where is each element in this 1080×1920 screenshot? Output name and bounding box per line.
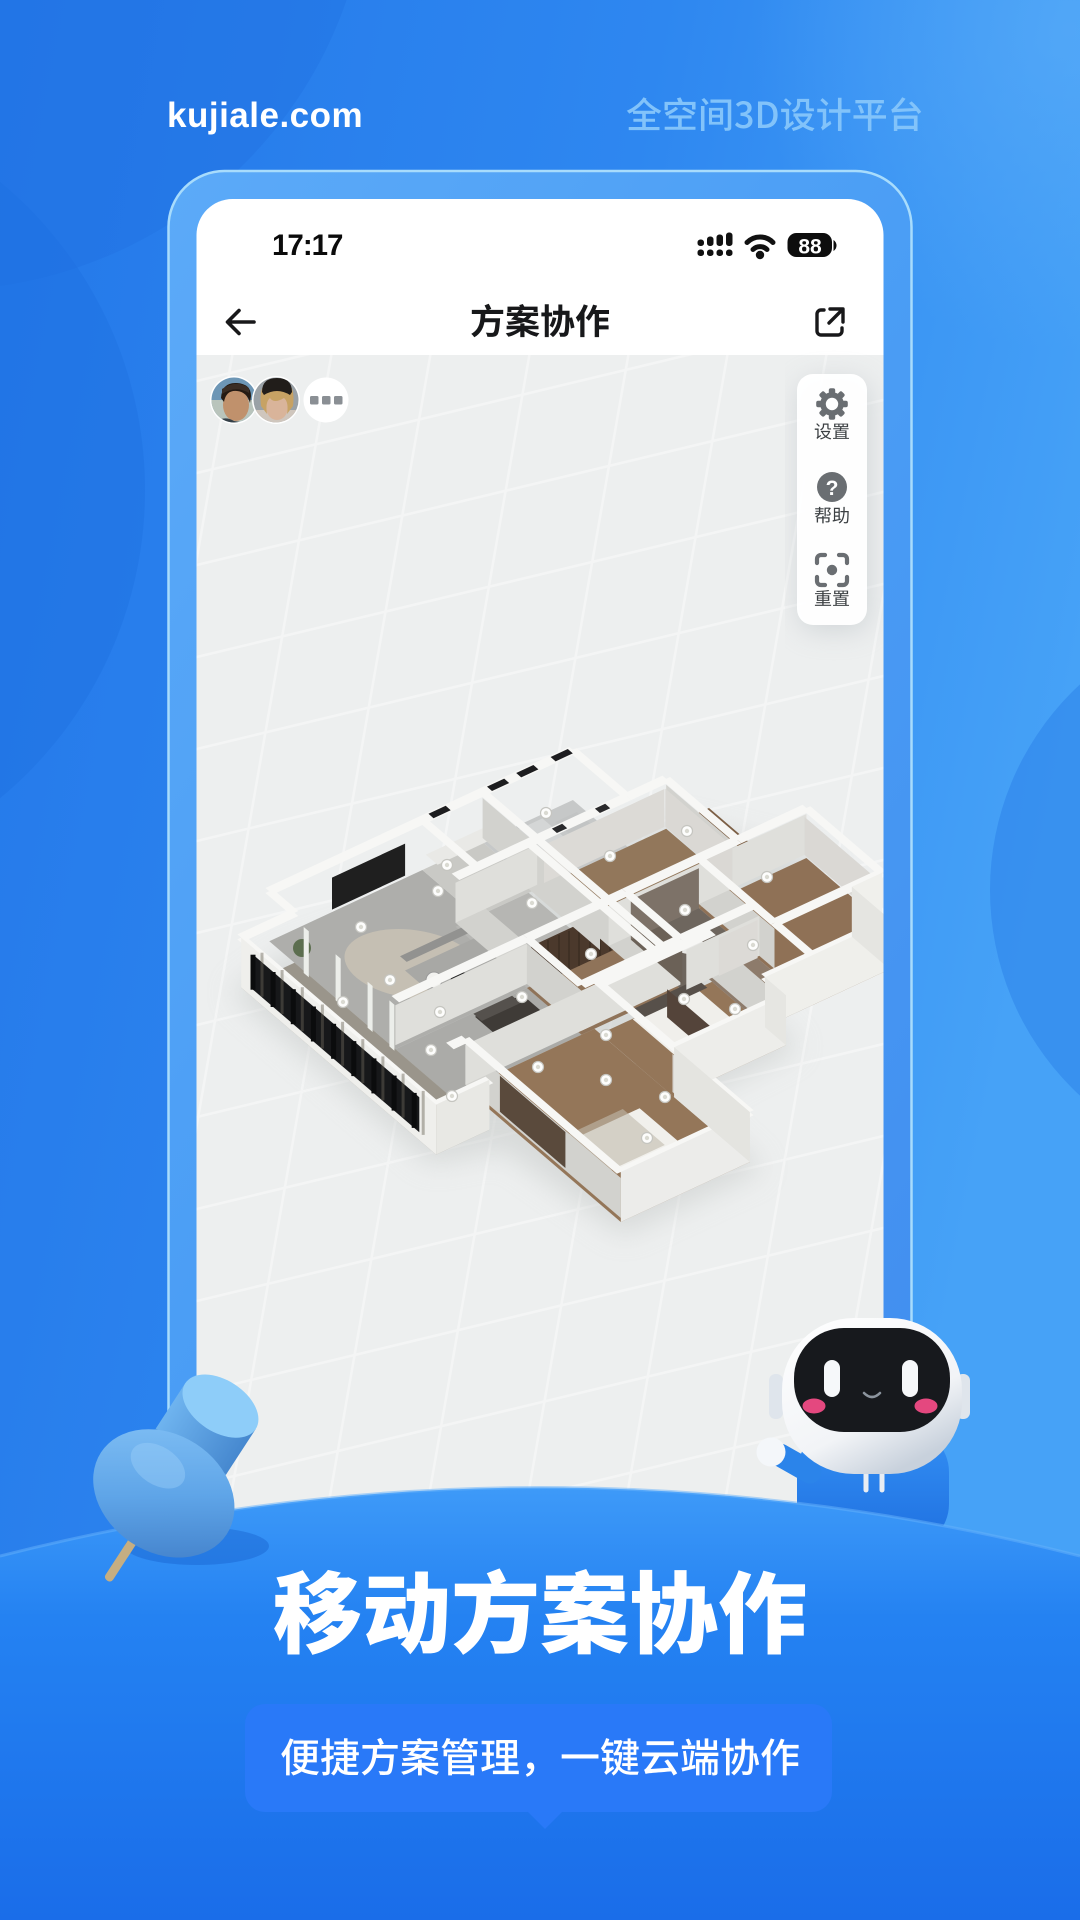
svg-text:88: 88 (798, 236, 822, 259)
svg-text:?: ? (826, 477, 839, 500)
svg-text:17:17: 17:17 (272, 229, 343, 262)
svg-text:kujiale.com: kujiale.com (167, 96, 363, 135)
